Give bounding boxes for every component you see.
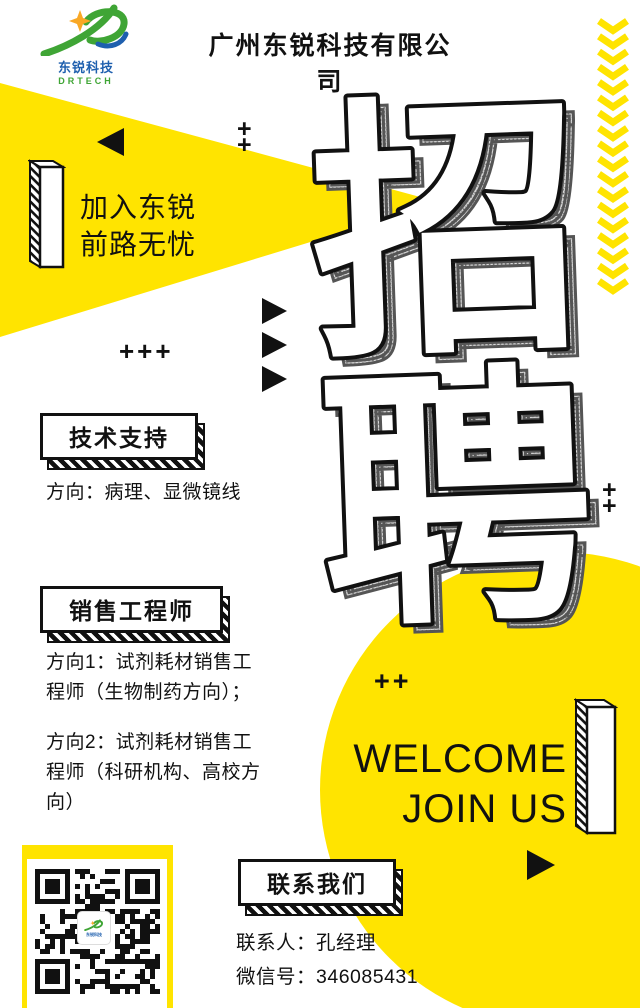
tech-direction-line: 方向：病理、显微镜线 <box>46 478 306 508</box>
contact-person-label: 联系人： <box>236 932 316 954</box>
welcome-line-1: WELCOME <box>353 734 567 784</box>
contact-wechat-line: 微信号：346085431 <box>236 960 418 989</box>
welcome-text: WELCOME JOIN US <box>353 734 567 834</box>
recruitment-poster: 东锐科技 DRTECH 广州东锐科技有限公司 + + 加入东锐 前路无忧 <box>0 0 640 1008</box>
right-arrow-icon <box>262 298 287 324</box>
plus-marks-circle: ++ <box>374 666 412 697</box>
right-arrow-bottom-icon <box>527 850 555 880</box>
3d-bar-right-decor <box>574 693 618 835</box>
section-title: 联系我们 <box>238 859 396 906</box>
section-header-sales: 销售工程师 <box>40 586 223 633</box>
logo-text-en: DRTECH <box>26 76 146 86</box>
company-logo: 东锐科技 DRTECH <box>26 4 146 86</box>
sales-direction-line-1: 方向1：试剂耗材销售工程师（生物制药方向）； <box>46 648 270 708</box>
plus-icon: + <box>237 137 252 153</box>
contact-person-name: 孔经理 <box>316 932 376 954</box>
recruit-title: 招 招 聘 聘 <box>292 76 640 658</box>
plus-marks-right: + + <box>602 482 617 514</box>
welcome-line-2: JOIN US <box>353 784 567 834</box>
company-name: 广州东锐科技有限公司 <box>198 26 462 98</box>
contact-person-line: 联系人：孔经理 <box>236 926 376 955</box>
contact-wechat-id: 346085431 <box>316 966 418 988</box>
qr-center-logo: 东锐科技 <box>77 911 111 945</box>
sales-direction-line-2: 方向2：试剂耗材销售工程师（科研机构、高校方向） <box>46 728 270 818</box>
logo-text-cn: 东锐科技 <box>26 57 146 76</box>
slogan-line-2: 前路无忧 <box>80 226 196 263</box>
plus-marks-top: + + <box>237 121 252 153</box>
right-arrow-icon <box>262 332 287 358</box>
qr-code-block: 东锐科技 <box>22 845 173 1008</box>
plus-icon: + <box>602 498 617 514</box>
contact-wechat-label: 微信号： <box>236 966 316 988</box>
right-arrows-decor <box>262 298 287 400</box>
hero-slogan: 加入东锐 前路无忧 <box>80 189 196 263</box>
qr-code-panel: 东锐科技 <box>27 859 167 1008</box>
section-title: 销售工程师 <box>40 586 223 633</box>
section-header-tech: 技术支持 <box>40 413 198 460</box>
title-char-1: 招 <box>306 76 588 389</box>
qr-logo-text: 东锐科技 <box>86 932 102 938</box>
3d-bar-left-decor <box>28 155 66 269</box>
left-arrow-icon <box>97 128 124 156</box>
star-icon <box>69 10 91 32</box>
logo-mark-icon <box>34 4 138 56</box>
right-arrow-icon <box>262 366 287 392</box>
plus-marks-row: +++ <box>119 336 174 367</box>
section-title: 技术支持 <box>40 413 198 460</box>
section-header-contact: 联系我们 <box>238 859 396 906</box>
slogan-line-1: 加入东锐 <box>80 189 196 226</box>
title-char-2: 聘 <box>316 346 598 658</box>
